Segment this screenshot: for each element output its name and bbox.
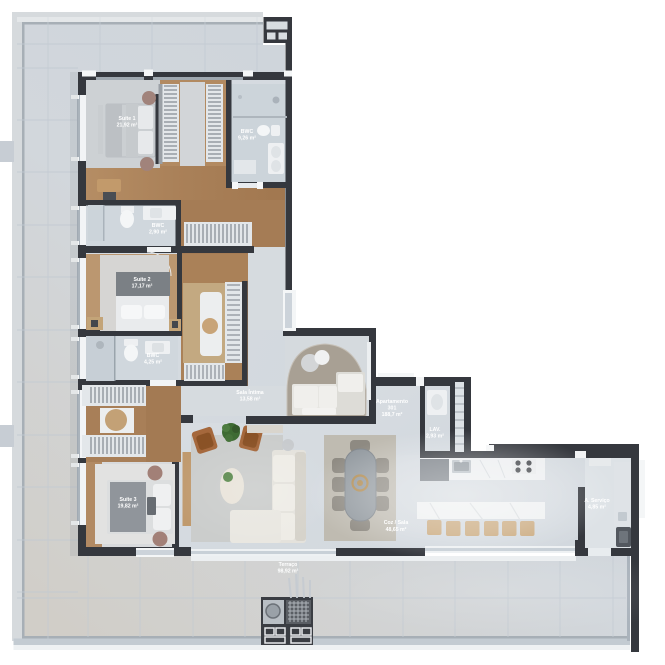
svg-text:4,85 m²: 4,85 m²: [588, 505, 606, 511]
svg-text:48,65 m²: 48,65 m²: [386, 527, 407, 533]
svg-text:21,92 m²: 21,92 m²: [117, 123, 138, 129]
svg-text:2,93 m²: 2,93 m²: [426, 434, 444, 440]
svg-text:13,58 m²: 13,58 m²: [240, 397, 261, 403]
svg-text:Coz / Sala: Coz / Sala: [384, 520, 409, 526]
svg-text:17,17 m²: 17,17 m²: [132, 284, 153, 290]
svg-text:4,25 m²: 4,25 m²: [144, 360, 162, 366]
svg-text:Apartamento: Apartamento: [376, 399, 408, 405]
svg-text:BWC: BWC: [152, 223, 165, 229]
svg-text:Suíte 2: Suíte 2: [133, 277, 150, 283]
svg-text:Suíte 3: Suíte 3: [119, 497, 136, 503]
svg-text:Terraço: Terraço: [279, 562, 298, 568]
svg-text:BWC: BWC: [147, 353, 160, 359]
svg-text:A. Serviço: A. Serviço: [584, 498, 609, 504]
svg-text:Suíte 1: Suíte 1: [118, 116, 135, 122]
svg-text:9,26 m²: 9,26 m²: [238, 136, 256, 142]
svg-text:Sala Íntima: Sala Íntima: [236, 388, 264, 396]
svg-text:2,90 m²: 2,90 m²: [149, 230, 167, 236]
svg-text:LAV.: LAV.: [430, 427, 442, 433]
svg-text:301: 301: [388, 406, 397, 412]
svg-text:19,82 m²: 19,82 m²: [118, 504, 139, 510]
svg-text:188,7 m²: 188,7 m²: [382, 412, 403, 418]
svg-text:BWC: BWC: [241, 129, 254, 135]
svg-text:98,92 m²: 98,92 m²: [278, 569, 299, 575]
